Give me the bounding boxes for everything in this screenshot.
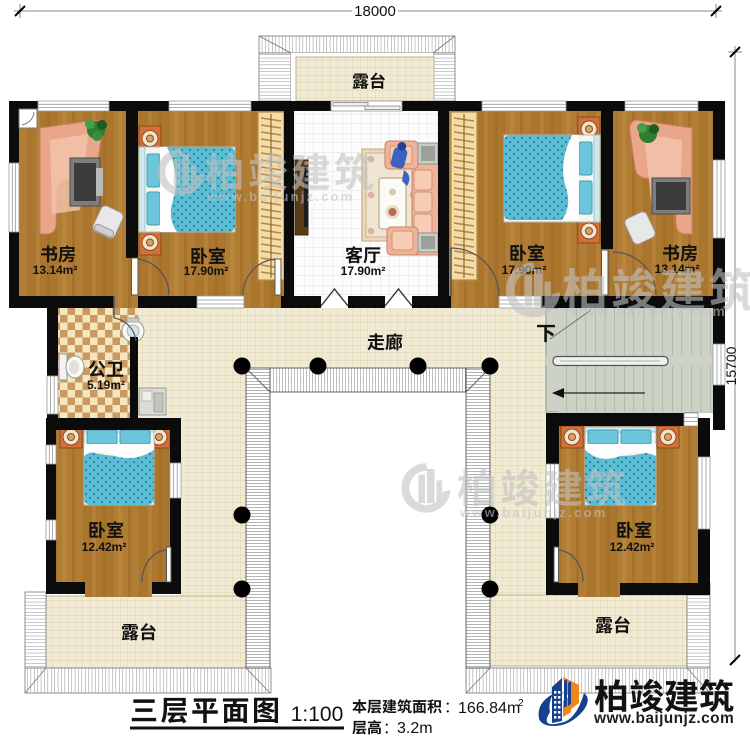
svg-text:166.84m: 166.84m xyxy=(458,700,520,717)
svg-text:15700: 15700 xyxy=(723,346,739,385)
svg-text:1:100: 1:100 xyxy=(291,703,344,726)
svg-text:：: ： xyxy=(383,720,398,737)
svg-text:12.42m²: 12.42m² xyxy=(82,540,127,554)
svg-text:www.baijunjz.com: www.baijunjz.com xyxy=(593,710,734,727)
svg-text:13.14m²: 13.14m² xyxy=(33,263,78,277)
svg-text:17.90m²: 17.90m² xyxy=(341,264,386,278)
svg-text:3.2m: 3.2m xyxy=(397,720,433,737)
svg-text:5.19m²: 5.19m² xyxy=(87,378,125,392)
svg-text:18000: 18000 xyxy=(354,3,396,20)
svg-text:2: 2 xyxy=(518,698,524,709)
svg-text:：: ： xyxy=(444,699,459,716)
svg-text:www.baijunjz.com: www.baijunjz.com xyxy=(459,505,607,520)
svg-text:www.baijunjz.com: www.baijunjz.com xyxy=(206,189,354,204)
svg-text:17.90m²: 17.90m² xyxy=(184,264,229,278)
svg-text:12.42m²: 12.42m² xyxy=(610,540,655,554)
svg-text:www.baijunjz.com: www.baijunjz.com xyxy=(570,303,727,319)
